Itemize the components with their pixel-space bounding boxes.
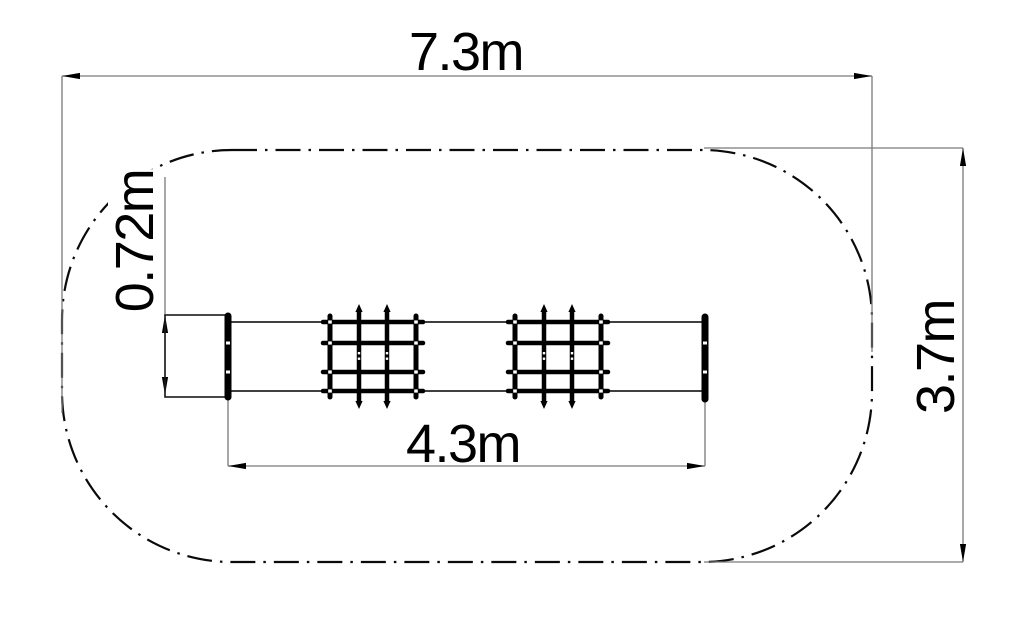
platform-outline	[165, 315, 228, 397]
dim-label-overall-width: 7.3m	[409, 25, 523, 79]
technical-drawing-canvas	[0, 0, 1024, 644]
net-panel-1	[323, 304, 423, 409]
technical-drawing-page: 7.3m 3.7m 4.3m 0.72m	[0, 0, 1024, 644]
climbing-net-equipment	[165, 304, 707, 409]
dim-label-equipment-length: 4.3m	[406, 417, 520, 471]
dimension-overall-width	[62, 73, 872, 413]
net-panel-2	[508, 304, 608, 409]
arrowhead-left-icon	[62, 73, 80, 79]
dim-label-overall-depth: 3.7m	[909, 300, 963, 414]
dim-label-equipment-width: 0.72m	[108, 170, 162, 313]
arrowhead-down-icon	[960, 544, 966, 562]
arrowhead-right-icon	[687, 463, 705, 469]
arrowhead-up-icon	[960, 148, 966, 166]
arrowhead-left-icon	[228, 463, 246, 469]
arrowhead-right-icon	[854, 73, 872, 79]
safety-zone-boundary	[62, 150, 872, 562]
